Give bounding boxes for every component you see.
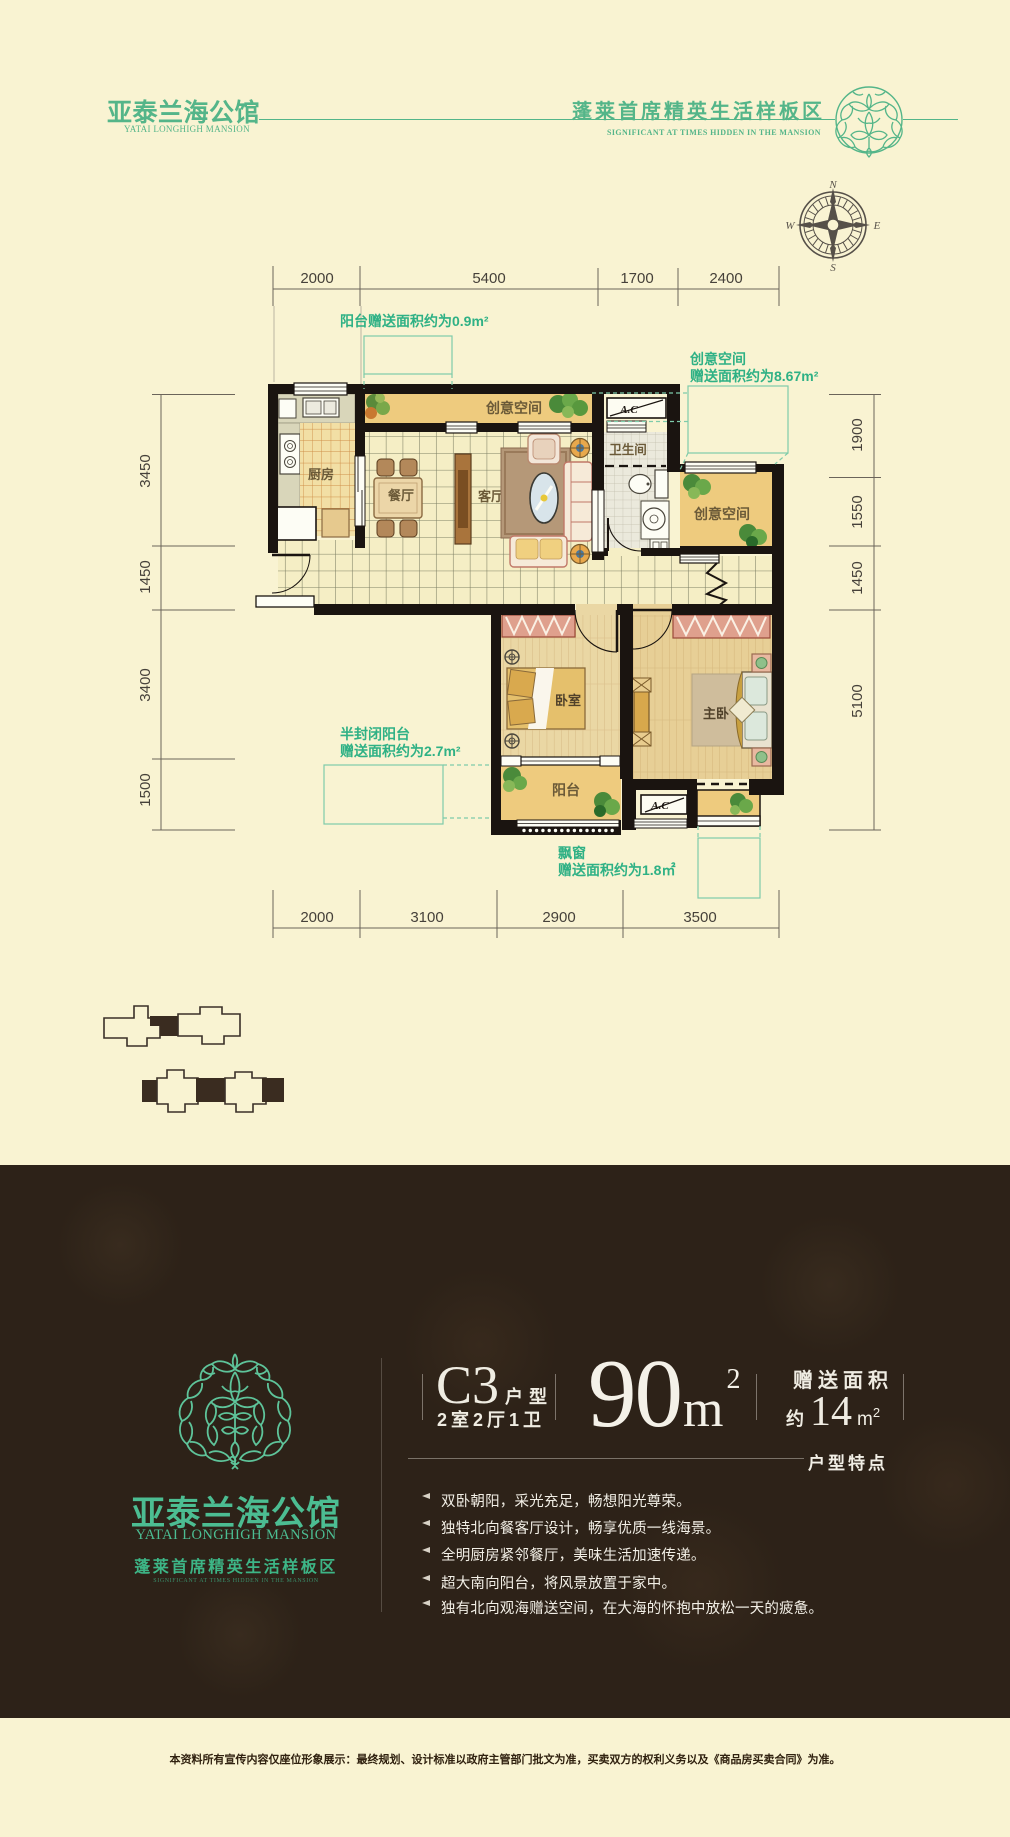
svg-text:飘窗: 飘窗	[558, 845, 586, 861]
svg-text:5400: 5400	[472, 270, 505, 287]
svg-text:餐厅: 餐厅	[387, 488, 414, 503]
svg-text:创意空间: 创意空间	[693, 506, 750, 522]
svg-text:2000: 2000	[300, 270, 333, 287]
svg-text:赠送面积约为1.8㎡: 赠送面积约为1.8㎡	[558, 862, 675, 878]
svg-text:厨房: 厨房	[308, 467, 334, 482]
svg-text:赠送面积约为2.7m²: 赠送面积约为2.7m²	[340, 743, 461, 759]
svg-text:1700: 1700	[620, 270, 653, 287]
svg-text:W: W	[785, 220, 795, 232]
svg-text:阳台赠送面积约为0.9m²: 阳台赠送面积约为0.9m²	[340, 313, 489, 329]
svg-text:赠送面积约为8.67m²: 赠送面积约为8.67m²	[690, 368, 819, 384]
svg-text:客厅: 客厅	[478, 489, 504, 504]
svg-text:1550: 1550	[849, 495, 866, 528]
svg-text:2400: 2400	[709, 270, 742, 287]
svg-text:1900: 1900	[849, 418, 866, 451]
svg-text:3500: 3500	[683, 909, 716, 926]
svg-text:A.C: A.C	[650, 800, 669, 812]
svg-text:半封闭阳台: 半封闭阳台	[340, 726, 410, 742]
svg-text:卧室: 卧室	[555, 693, 581, 708]
svg-text:E: E	[873, 220, 881, 232]
svg-text:1450: 1450	[137, 560, 154, 593]
svg-text:3450: 3450	[137, 454, 154, 487]
svg-text:1500: 1500	[137, 773, 154, 806]
svg-text:2000: 2000	[300, 909, 333, 926]
svg-text:阳台: 阳台	[552, 782, 580, 798]
svg-text:主卧: 主卧	[703, 706, 729, 721]
svg-text:创意空间: 创意空间	[689, 351, 746, 367]
svg-text:N: N	[828, 179, 837, 191]
svg-text:5100: 5100	[849, 684, 866, 717]
svg-text:3100: 3100	[410, 909, 443, 926]
svg-text:S: S	[830, 262, 836, 274]
svg-text:卫生间: 卫生间	[609, 442, 647, 457]
svg-text:1450: 1450	[849, 561, 866, 594]
svg-text:3400: 3400	[137, 668, 154, 701]
svg-text:2900: 2900	[542, 909, 575, 926]
svg-text:创意空间: 创意空间	[485, 400, 542, 416]
